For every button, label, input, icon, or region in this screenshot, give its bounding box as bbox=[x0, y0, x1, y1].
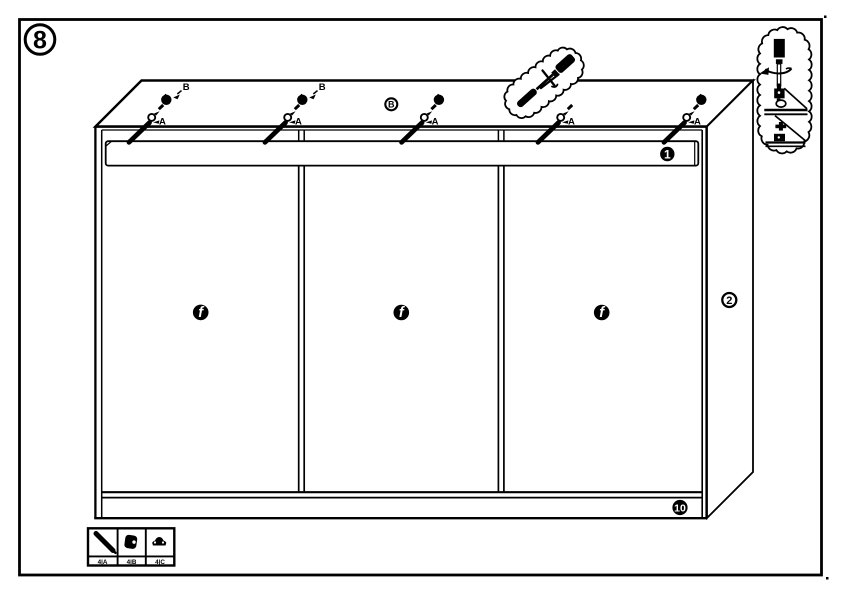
svg-text:1: 1 bbox=[664, 147, 671, 161]
svg-text:B: B bbox=[388, 100, 395, 110]
svg-text:10: 10 bbox=[674, 502, 686, 514]
svg-text:2: 2 bbox=[726, 295, 732, 307]
svg-text:4|B: 4|B bbox=[127, 559, 137, 566]
svg-text:4|A: 4|A bbox=[98, 559, 108, 566]
svg-text:8: 8 bbox=[33, 27, 47, 55]
svg-text:4|C: 4|C bbox=[155, 559, 165, 566]
